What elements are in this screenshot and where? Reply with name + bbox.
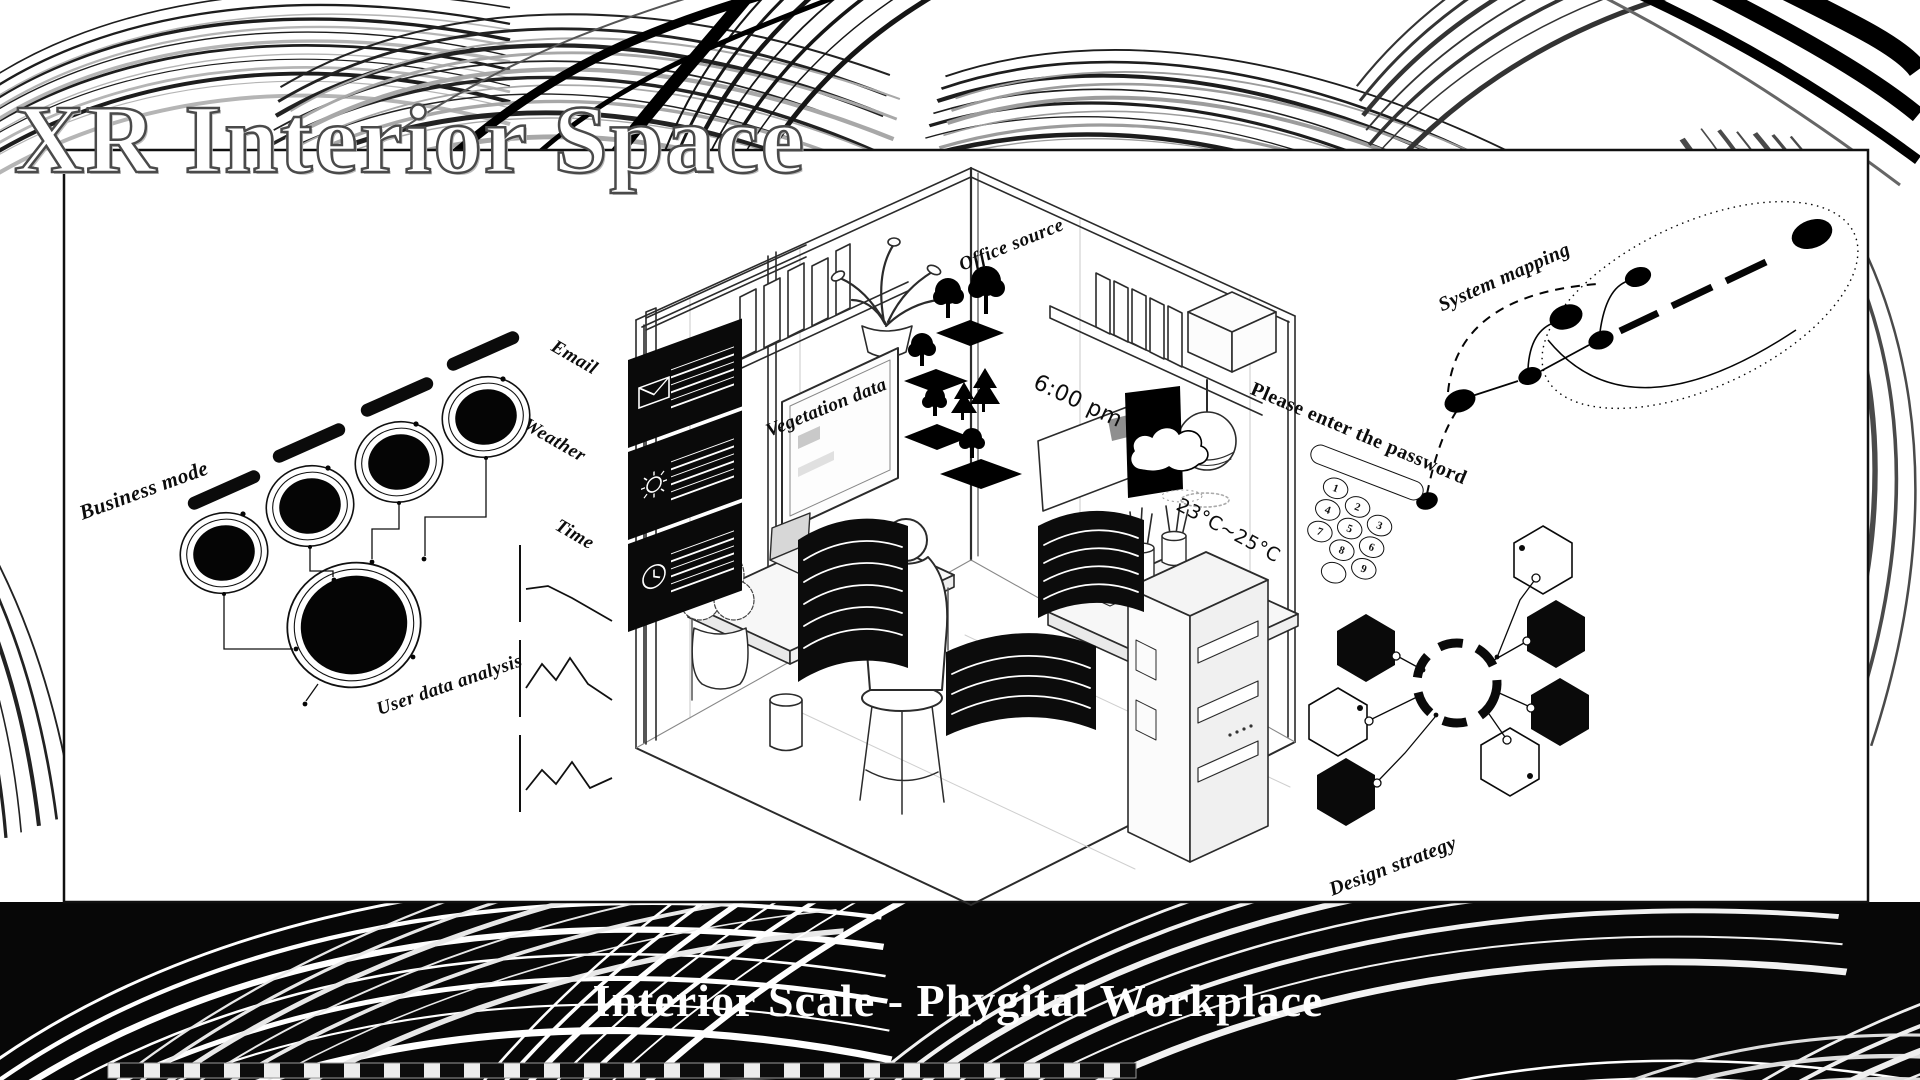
computer-tower (1128, 552, 1268, 862)
page-title: XR Interior Space (14, 84, 806, 195)
xr-interior-space-poster: { "page": { "main_title": "XR Interior S… (0, 0, 1920, 1080)
email-text-lines (671, 340, 734, 414)
banner-title: Interior Scale - Phygital Workplace (593, 974, 1324, 1027)
envelope-icon (637, 373, 671, 416)
weather-text-lines (671, 432, 734, 506)
clock-icon (637, 555, 671, 602)
time-text-lines (671, 524, 734, 598)
sun-icon (637, 463, 671, 510)
keypad-key-9[interactable]: 9 (1348, 554, 1380, 583)
waste-bin (770, 694, 802, 751)
film-strip (108, 1063, 1136, 1078)
